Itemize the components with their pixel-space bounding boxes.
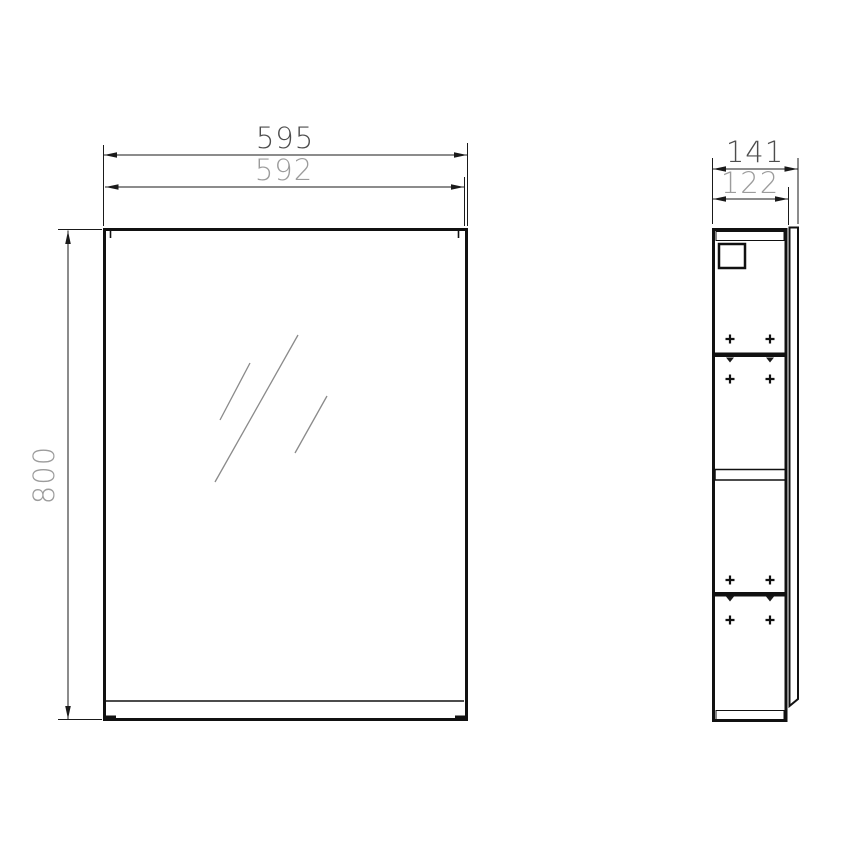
arrowhead-down-icon: [65, 706, 71, 719]
adjustable-shelf: [715, 592, 786, 597]
shelf-pin-mark: [726, 597, 734, 602]
bottom-left-corner-block: [103, 716, 116, 722]
dim-label-depth-carcass: 122: [721, 166, 779, 200]
arrowhead-right-icon: [454, 152, 467, 158]
front-view: [103, 230, 468, 722]
adjustable-shelf: [715, 353, 786, 358]
front-dimensions: 595 592 800: [27, 121, 468, 720]
pin-cross-icon: [726, 375, 735, 384]
dim-label-width-overall: 595: [256, 121, 314, 155]
dim-label-height: 800: [27, 446, 61, 504]
dim-label-depth-overall: 141: [726, 135, 784, 169]
side-dimensions: 141 122: [713, 135, 799, 225]
mirror-glass-line: [215, 335, 298, 482]
arrowhead-right-icon: [785, 166, 798, 172]
pin-cross-icon: [766, 616, 775, 625]
pin-cross-icon: [766, 335, 775, 344]
arrowhead-up-icon: [65, 231, 71, 244]
pin-cross-icon: [726, 335, 735, 344]
shelf-pin-mark: [766, 597, 774, 602]
dim-label-width-door: 592: [255, 153, 313, 187]
bottom-panel-section: [716, 711, 784, 720]
shelf-pin-mark: [726, 358, 734, 363]
cabinet-side-outline: [714, 230, 787, 721]
arrowhead-right-icon: [451, 184, 464, 190]
pin-cross-icon: [766, 576, 775, 585]
mirror-glass-line: [220, 363, 250, 420]
pin-cross-icon: [766, 375, 775, 384]
arrowhead-left-icon: [104, 152, 117, 158]
fixed-shelf-section: [715, 470, 786, 481]
door-cross-section: [790, 228, 799, 707]
side-view: [714, 228, 799, 721]
shelf-pin-mark: [766, 358, 774, 363]
mirror-cabinet-drawing: 595 592 800: [0, 0, 868, 868]
mounting-bracket: [719, 244, 745, 268]
top-panel-section: [716, 232, 784, 241]
technical-drawing-canvas: 595 592 800: [0, 0, 868, 868]
bottom-right-corner-block: [455, 716, 468, 722]
pin-cross-icon: [726, 576, 735, 585]
cabinet-front-outline: [105, 230, 467, 720]
mirror-glass-line: [295, 396, 327, 453]
arrowhead-left-icon: [106, 184, 119, 190]
pin-cross-icon: [726, 616, 735, 625]
